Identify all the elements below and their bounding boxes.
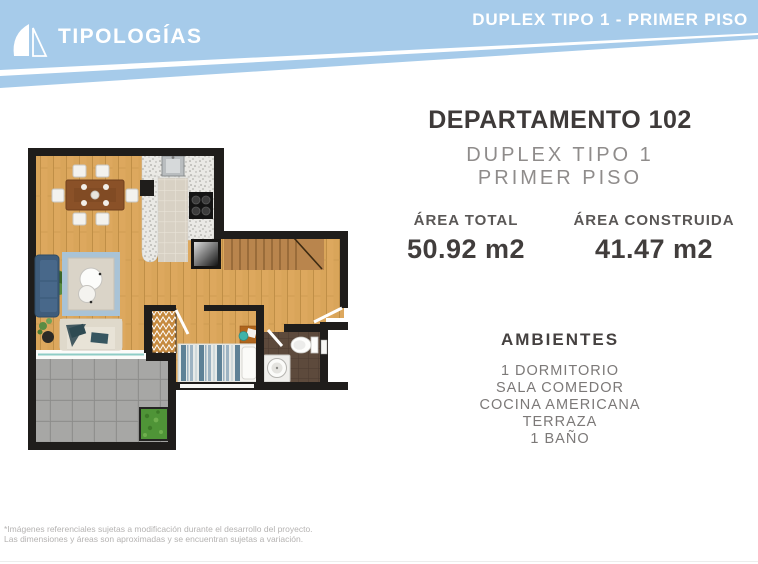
area-built-cell: ÁREA CONSTRUIDA 41.47 m2 xyxy=(560,212,748,265)
kitchen-sink xyxy=(162,156,184,176)
sofa-light xyxy=(60,319,122,350)
disclaimer-line-2: Las dimensiones y áreas son aproximadas … xyxy=(4,534,313,544)
kitchen-floor xyxy=(158,176,188,262)
toilet-icon xyxy=(291,337,318,353)
page-label: DUPLEX TIPO 1 - PRIMER PISO xyxy=(472,10,748,30)
bedroom-window xyxy=(180,384,254,388)
ambiente-item: SALA COMEDOR xyxy=(388,380,732,397)
ambientes-section: AMBIENTES 1 DORMITORIO SALA COMEDOR COCI… xyxy=(388,330,732,448)
brand-logo-icon xyxy=(8,21,50,59)
ambiente-item: 1 BAÑO xyxy=(388,431,732,448)
wardrobe xyxy=(152,309,176,353)
bathroom-sink-icon xyxy=(264,355,290,382)
glass-wall xyxy=(36,350,146,359)
refrigerator-icon xyxy=(191,239,221,269)
ambiente-item: COCINA AMERICANA xyxy=(388,397,732,414)
stove-icon xyxy=(189,192,213,219)
unit-type-line: DUPLEX TIPO 1 xyxy=(388,144,732,167)
stairs xyxy=(224,237,324,270)
bathroom-window xyxy=(321,340,327,354)
floor-plan xyxy=(28,148,348,455)
ambiente-item: TERRAZA xyxy=(388,414,732,431)
bathroom xyxy=(264,332,320,382)
disclaimer-line-1: *Imágenes referenciales sujetas a modifi… xyxy=(4,524,313,534)
brand-title: TIPOLOGÍAS xyxy=(58,25,203,49)
bed xyxy=(178,344,258,382)
planter xyxy=(140,408,168,440)
area-stats: ÁREA TOTAL 50.92 m2 ÁREA CONSTRUIDA 41.4… xyxy=(372,212,748,265)
terrace xyxy=(36,359,168,442)
area-built-value: 41.47 m2 xyxy=(560,234,748,265)
area-total-label: ÁREA TOTAL xyxy=(372,212,560,229)
ambiente-item: 1 DORMITORIO xyxy=(388,363,732,380)
area-total-cell: ÁREA TOTAL 50.92 m2 xyxy=(372,212,560,265)
unit-floor-line: PRIMER PISO xyxy=(388,167,732,190)
slide: TIPOLOGÍAS DUPLEX TIPO 1 - PRIMER PISO D… xyxy=(0,0,758,564)
disclaimer: *Imágenes referenciales sujetas a modifi… xyxy=(4,524,313,544)
sofa-blue xyxy=(35,255,59,317)
area-total-value: 50.92 m2 xyxy=(372,234,560,265)
area-built-label: ÁREA CONSTRUIDA xyxy=(560,212,748,229)
unit-title: DEPARTAMENTO 102 xyxy=(388,106,732,135)
ambientes-heading: AMBIENTES xyxy=(388,330,732,350)
bottom-divider xyxy=(0,561,758,562)
